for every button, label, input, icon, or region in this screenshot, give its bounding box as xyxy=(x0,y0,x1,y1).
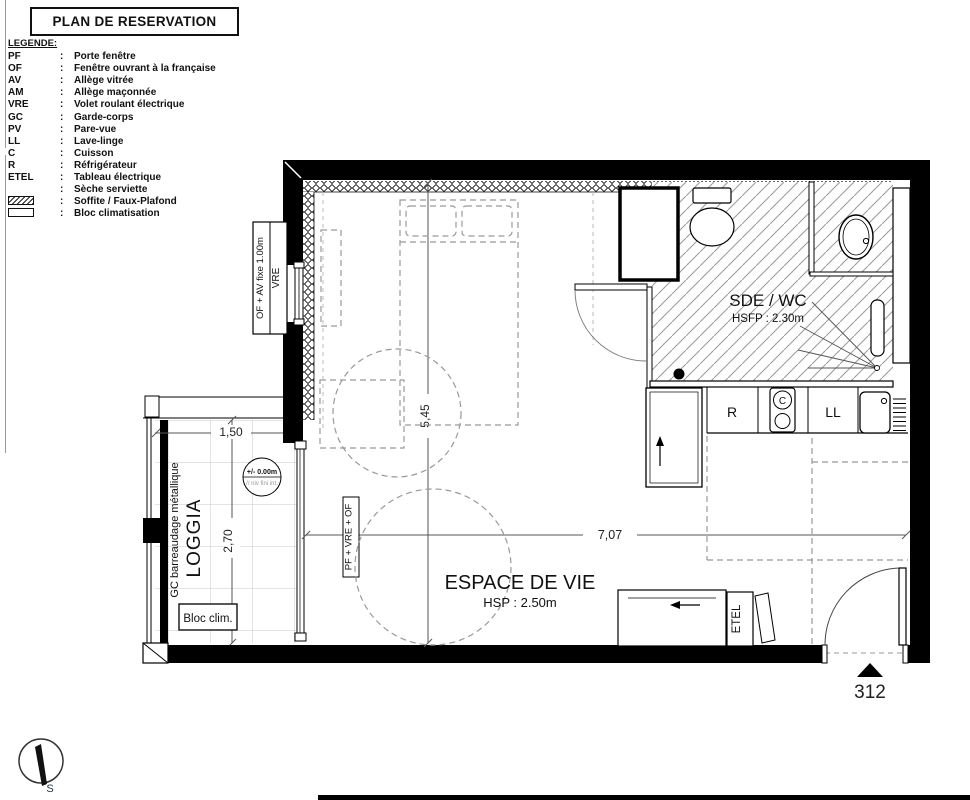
loggia-door-label: PF + VRE + OF xyxy=(344,504,355,571)
fridge-label: R xyxy=(727,404,737,420)
drainer xyxy=(893,399,906,431)
bathroom-door-swing xyxy=(575,290,646,361)
turning-circle-bedroom xyxy=(333,349,461,477)
bed-pillow xyxy=(462,206,512,236)
loggia-railing-label: GC barreaudage métallique xyxy=(169,462,181,597)
dim-loggia-depth: 2,70 xyxy=(221,529,235,553)
etel-door-leaf xyxy=(755,593,775,643)
floor-plan-sheet: PLAN DE RESERVATION LEGENDE: PF:Porte fe… xyxy=(0,0,970,800)
loggia-post xyxy=(160,420,168,518)
tall-cabinet xyxy=(646,388,702,487)
level-note: // niv fini int. xyxy=(246,481,278,487)
washer-label: LL xyxy=(825,404,841,420)
loggia: +/- 0.00m // niv fini int. GC barreaudag… xyxy=(143,396,303,663)
seche-serviette xyxy=(674,369,685,380)
toilet xyxy=(690,188,734,246)
closet xyxy=(620,188,678,280)
level-value: +/- 0.00m xyxy=(247,469,277,476)
washbasin xyxy=(839,215,873,259)
loggia-door-pf xyxy=(295,441,306,641)
kitchen: R LL C xyxy=(646,387,908,487)
entry-area: ETEL 312 xyxy=(618,568,908,703)
unit-number: 312 xyxy=(854,682,886,703)
bed-pillow xyxy=(406,206,456,236)
bloc-clim-label: Bloc clim. xyxy=(183,613,232,625)
vanity-edge xyxy=(810,272,893,276)
wall-bottom-right xyxy=(905,645,930,663)
hob-label: C xyxy=(779,396,786,407)
turning-circle-living xyxy=(355,489,511,645)
living-ceiling-label: HSP : 2.50m xyxy=(483,595,556,610)
loggia-pier xyxy=(143,518,168,543)
loggia-room-label: LOGGIA xyxy=(184,499,205,578)
dim-room-width: 7,07 xyxy=(598,528,622,542)
sde-ceiling-label: HSFP : 2.30m xyxy=(732,313,804,325)
sde-wc-room: SDE / WC HSFP : 2.30m xyxy=(575,182,910,388)
loggia-post xyxy=(160,543,168,643)
compass: S xyxy=(19,739,63,795)
bathroom-partition xyxy=(809,182,814,274)
etel-label: ETEL xyxy=(731,604,743,633)
bed-outline xyxy=(400,200,518,425)
entry-door-swing xyxy=(825,568,899,645)
window-label: OF + AV fixe 1.00m xyxy=(255,237,266,319)
sink xyxy=(860,392,890,433)
bathroom-wall-left xyxy=(647,287,652,388)
sheet-edge-strip xyxy=(318,795,970,800)
wall-right xyxy=(910,180,930,663)
compass-south-label: S xyxy=(46,783,53,795)
entry-cupboard xyxy=(618,590,726,646)
insulation-band-left xyxy=(303,192,314,420)
technical-shaft xyxy=(893,188,910,363)
shower-door-panel xyxy=(871,300,884,356)
level-marker: +/- 0.00m // niv fini int. xyxy=(243,458,281,496)
compass-needle xyxy=(35,744,47,786)
hob xyxy=(770,388,795,432)
dim-loggia-width: 1,50 xyxy=(219,425,243,439)
window-label-vre: VRE xyxy=(271,267,282,288)
wardrobe-outline xyxy=(321,230,341,326)
desk-outline xyxy=(320,380,404,448)
living-room-label: ESPACE DE VIE xyxy=(445,572,596,594)
soffite-hatch-area xyxy=(652,182,893,386)
bathroom-door-leaf xyxy=(575,284,647,290)
wall-left-loggia-junction xyxy=(283,420,303,443)
entry-door-leaf xyxy=(899,568,906,645)
bathroom-wall-bottom xyxy=(650,381,893,387)
wall-top xyxy=(283,160,930,180)
wall-left-mid xyxy=(283,322,303,420)
floor-plan-drawing: +/- 0.00m // niv fini int. GC barreaudag… xyxy=(0,0,970,800)
sde-room-label: SDE / WC xyxy=(729,291,806,310)
entry-arrow-triangle xyxy=(857,663,883,677)
dim-room-depth: 5,45 xyxy=(418,404,432,428)
wall-bottom xyxy=(168,645,825,663)
